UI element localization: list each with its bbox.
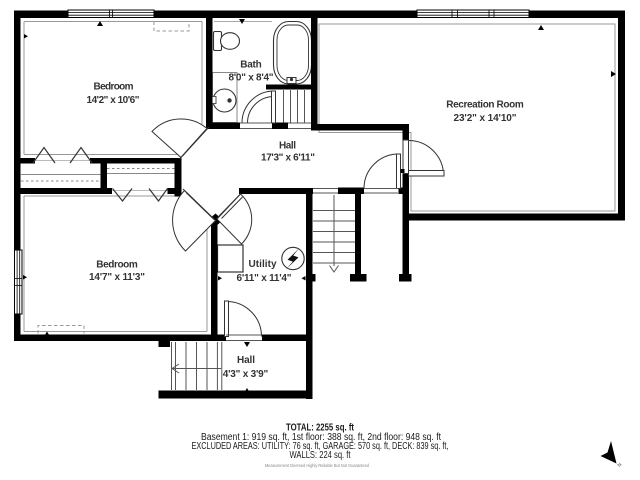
svg-text:14'2" x 10'6": 14'2" x 10'6" [87, 95, 140, 106]
svg-text:8'0" x 8'4": 8'0" x 8'4" [229, 73, 274, 84]
svg-text:Bedroom: Bedroom [96, 260, 138, 271]
svg-text:Hall: Hall [279, 141, 296, 152]
svg-text:17'3" x 6'11": 17'3" x 6'11" [261, 153, 315, 164]
svg-text:Measurement Deemed Highly Reli: Measurement Deemed Highly Reliable But N… [265, 463, 370, 468]
svg-text:Utility: Utility [249, 259, 277, 270]
svg-text:6'11" x 11'4": 6'11" x 11'4" [237, 273, 292, 284]
svg-text:23'2" x 14'10": 23'2" x 14'10" [454, 113, 517, 124]
svg-text:WALLS: 224 sq. ft: WALLS: 224 sq. ft [290, 450, 351, 461]
svg-text:Bedroom: Bedroom [94, 82, 134, 93]
svg-text:14'7" x 11'3": 14'7" x 11'3" [89, 272, 145, 283]
svg-text:4'3" x 3'9": 4'3" x 3'9" [223, 369, 269, 380]
svg-text:Hall: Hall [237, 355, 255, 366]
svg-text:Recreation Room: Recreation Room [446, 100, 524, 111]
svg-text:Bath: Bath [240, 60, 262, 71]
